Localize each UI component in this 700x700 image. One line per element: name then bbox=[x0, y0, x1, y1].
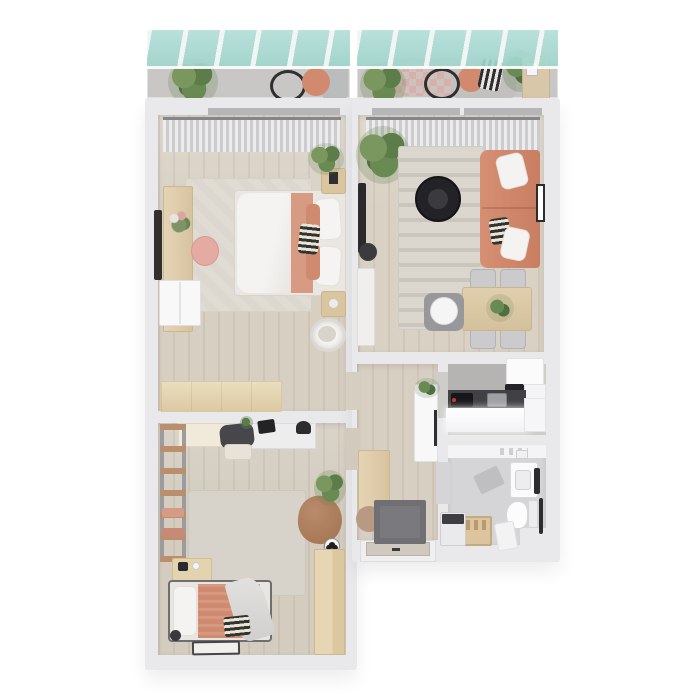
kids-plant bbox=[314, 470, 346, 506]
bathroom-hamper-lid bbox=[442, 514, 464, 524]
kitchen-side-counter bbox=[524, 398, 546, 432]
living-tv-stand bbox=[357, 268, 375, 346]
kids-bed-cushion bbox=[223, 615, 251, 638]
bedroom-dresser-seam bbox=[179, 282, 181, 324]
bathroom-door-opening bbox=[436, 462, 450, 504]
balcony-left-glass-roof bbox=[147, 30, 350, 68]
living-speaker bbox=[359, 243, 377, 261]
kitchen-backsplash bbox=[448, 364, 508, 392]
bathroom-sink-basin bbox=[515, 470, 531, 490]
living-chair-bottom-right bbox=[500, 329, 526, 349]
floor-plan-canvas bbox=[0, 0, 700, 700]
bedroom-basket-blanket bbox=[318, 326, 336, 342]
living-curtain-rod bbox=[366, 117, 540, 120]
bedroom-nightstand-lamp bbox=[328, 298, 339, 309]
living-sofa-seam bbox=[482, 207, 538, 209]
bathroom-crate-bottles bbox=[466, 520, 486, 530]
living-table-centerpiece bbox=[486, 294, 514, 322]
kitchen-fridge bbox=[506, 358, 544, 386]
living-chair-bottom-left bbox=[470, 329, 496, 349]
bathroom-faucet bbox=[534, 468, 540, 494]
bedroom-curtain-rod bbox=[163, 117, 341, 120]
kids-nightstand-clock bbox=[178, 562, 188, 571]
kids-bed-mat bbox=[192, 641, 240, 656]
bedroom-door-opening bbox=[346, 372, 360, 410]
bedroom-vanity-flowers bbox=[167, 208, 191, 234]
living-chair-top-left bbox=[470, 269, 496, 289]
kitchen-cooktop-knob bbox=[452, 398, 456, 402]
kids-towel-1 bbox=[162, 508, 184, 517]
kids-stool bbox=[224, 444, 252, 460]
kitchen-counter-front bbox=[446, 408, 530, 432]
kids-towel-2 bbox=[162, 528, 184, 537]
balcony-left-rail bbox=[147, 66, 350, 69]
bathroom-towel-rail bbox=[539, 498, 543, 534]
living-coffee-table-tray bbox=[428, 189, 448, 209]
bathroom-tp-holder bbox=[516, 450, 528, 459]
bathroom-toilet-tank bbox=[528, 500, 538, 528]
balcony-right-glass-roof bbox=[357, 30, 558, 68]
kids-bed-pillow bbox=[173, 586, 197, 636]
bedroom-bed-duvet bbox=[237, 193, 293, 293]
bedroom-plant bbox=[308, 143, 344, 175]
kids-wardrobe bbox=[314, 549, 345, 655]
kitchen-sink bbox=[487, 393, 507, 407]
entrance-door-handle bbox=[392, 548, 400, 551]
bedroom-wall-mirror bbox=[154, 210, 162, 280]
bedroom-sideboard bbox=[160, 381, 282, 412]
bedroom-patterned-cushion bbox=[297, 223, 320, 255]
kids-floor-lamp bbox=[170, 630, 181, 641]
kids-desk-plant bbox=[240, 416, 253, 429]
hall-cabinet-handle bbox=[434, 410, 437, 446]
kids-nightstand-jar bbox=[192, 562, 200, 570]
kids-ladder-rungs bbox=[160, 424, 186, 562]
bedroom-stool bbox=[191, 236, 219, 266]
living-chair-top-right bbox=[500, 269, 526, 289]
bathroom-shelf bbox=[448, 445, 546, 458]
balcony-right-wire-chair bbox=[424, 68, 460, 100]
kids-desk-lamp bbox=[296, 421, 311, 434]
living-picture-frame bbox=[536, 184, 545, 222]
kids-laptop bbox=[257, 419, 276, 434]
living-high-chair-seat bbox=[430, 297, 458, 325]
hall-cabinet-plant bbox=[414, 378, 440, 398]
hall-doormat-inner bbox=[380, 506, 420, 538]
balcony-right-rail bbox=[357, 66, 558, 69]
